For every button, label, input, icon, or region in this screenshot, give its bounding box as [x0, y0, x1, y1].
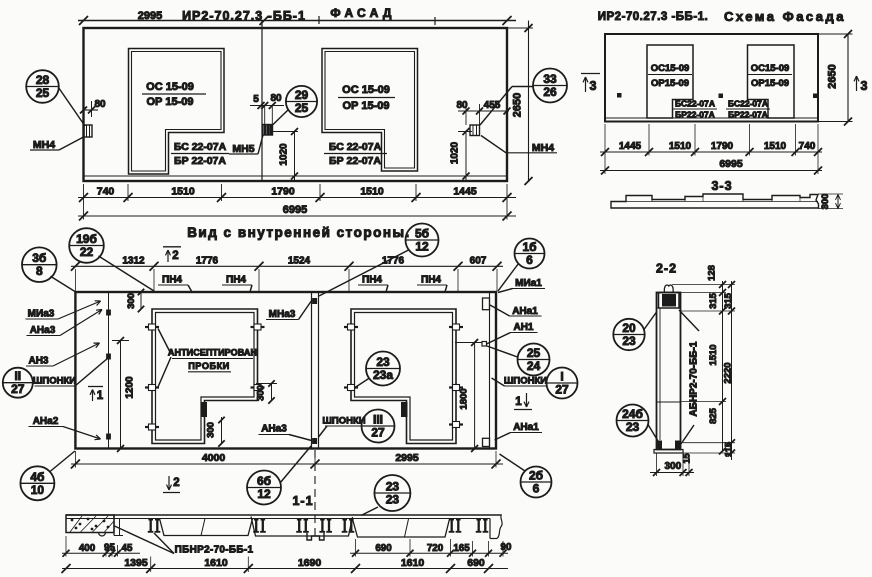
svg-text:33: 33 — [543, 72, 557, 86]
svg-text:ИР2-70.27.3 -ББ-1.: ИР2-70.27.3 -ББ-1. — [598, 11, 709, 23]
svg-text:1610: 1610 — [204, 557, 228, 569]
svg-text:МИа3: МИа3 — [28, 309, 55, 320]
svg-text:БР22-07А: БР22-07А — [675, 110, 715, 120]
svg-text:5: 5 — [253, 94, 259, 105]
svg-text:23: 23 — [376, 355, 390, 369]
svg-text:27: 27 — [371, 426, 385, 440]
svg-text:6995: 6995 — [719, 158, 743, 170]
svg-text:740: 740 — [799, 141, 816, 152]
svg-text:300: 300 — [206, 422, 217, 438]
svg-text:2995: 2995 — [395, 452, 419, 464]
svg-text:ОС 15-09: ОС 15-09 — [342, 84, 390, 96]
svg-text:6б: 6б — [257, 474, 271, 488]
svg-text:27: 27 — [11, 382, 25, 396]
svg-text:80: 80 — [94, 99, 106, 110]
svg-text:300: 300 — [820, 194, 831, 210]
svg-text:128: 128 — [707, 265, 718, 281]
svg-text:1445: 1445 — [619, 141, 642, 152]
svg-text:2б: 2б — [529, 469, 543, 483]
svg-text:690: 690 — [467, 557, 485, 569]
svg-text:6: 6 — [526, 253, 533, 267]
svg-text:III: III — [373, 413, 383, 427]
svg-text:80: 80 — [270, 93, 282, 104]
svg-text:2: 2 — [173, 477, 179, 489]
svg-text:АН1: АН1 — [513, 322, 533, 333]
svg-text:1510: 1510 — [669, 141, 692, 152]
svg-text:400: 400 — [79, 543, 96, 554]
svg-text:607: 607 — [470, 256, 487, 267]
svg-text:МН5: МН5 — [232, 143, 254, 155]
svg-text:23: 23 — [386, 480, 400, 494]
svg-text:ПН4: ПН4 — [421, 275, 441, 286]
svg-text:1-1: 1-1 — [292, 494, 313, 508]
svg-text:19б: 19б — [76, 232, 97, 246]
svg-text:АНа1: АНа1 — [512, 306, 538, 317]
svg-text:20: 20 — [622, 321, 636, 335]
svg-text:1020: 1020 — [450, 141, 461, 164]
svg-text:ШПОНКИ: ШПОНКИ — [504, 376, 547, 387]
svg-text:1б: 1б — [522, 240, 536, 254]
svg-text:300: 300 — [664, 461, 681, 472]
svg-text:165: 165 — [453, 543, 470, 554]
svg-text:1200: 1200 — [125, 376, 136, 399]
svg-text:28: 28 — [36, 73, 50, 87]
svg-text:90: 90 — [501, 542, 512, 553]
svg-text:1510: 1510 — [708, 344, 719, 365]
svg-text:1610: 1610 — [401, 557, 425, 569]
svg-text:1510: 1510 — [764, 141, 787, 152]
svg-text:1510: 1510 — [360, 186, 384, 198]
svg-text:ОС15-09: ОС15-09 — [751, 63, 790, 74]
svg-text:ПН4: ПН4 — [226, 275, 246, 286]
svg-text:6995: 6995 — [283, 204, 307, 216]
svg-text:115: 115 — [724, 441, 735, 457]
svg-text:ПН4: ПН4 — [362, 275, 382, 286]
svg-text:12: 12 — [415, 240, 429, 254]
svg-text:8: 8 — [36, 264, 43, 278]
svg-text:II: II — [14, 369, 21, 383]
svg-text:ОР 15-09: ОР 15-09 — [146, 96, 193, 108]
svg-text:25: 25 — [527, 346, 541, 360]
svg-text:24б: 24б — [622, 407, 643, 421]
svg-text:ОС15-09: ОС15-09 — [651, 63, 690, 74]
svg-text:БР 22-07А: БР 22-07А — [329, 155, 381, 167]
svg-text:2650: 2650 — [827, 64, 839, 88]
svg-text:23: 23 — [386, 493, 400, 507]
svg-text:БС22-07А: БС22-07А — [675, 99, 715, 109]
svg-text:3-3: 3-3 — [711, 179, 732, 193]
svg-text:23а: 23а — [373, 368, 393, 382]
svg-text:3: 3 — [861, 79, 868, 93]
svg-text:720: 720 — [427, 543, 444, 554]
svg-text:315: 315 — [723, 292, 734, 309]
svg-text:1: 1 — [515, 396, 522, 408]
svg-text:2220: 2220 — [723, 362, 734, 383]
svg-text:1510: 1510 — [171, 186, 195, 198]
svg-text:26: 26 — [543, 85, 557, 99]
svg-text:1800: 1800 — [459, 388, 470, 409]
svg-text:29: 29 — [295, 88, 309, 102]
svg-text:АНа2: АНа2 — [33, 416, 59, 427]
svg-text:1790: 1790 — [711, 141, 734, 152]
svg-text:1020: 1020 — [279, 143, 290, 166]
svg-text:1312: 1312 — [122, 256, 145, 267]
svg-text:БР22-07А: БР22-07А — [728, 110, 768, 120]
svg-text:ПБНР2-70-ББ-1: ПБНР2-70-ББ-1 — [175, 545, 254, 556]
svg-text:1524: 1524 — [288, 256, 311, 267]
svg-text:1395: 1395 — [124, 557, 148, 569]
svg-text:27: 27 — [555, 383, 569, 397]
svg-text:23: 23 — [626, 420, 640, 434]
svg-text:1790: 1790 — [271, 186, 295, 198]
svg-text:МН4: МН4 — [33, 139, 55, 151]
svg-text:4000: 4000 — [202, 452, 226, 464]
svg-text:23: 23 — [622, 334, 636, 348]
svg-text:АН3: АН3 — [28, 356, 48, 367]
svg-text:300: 300 — [256, 385, 267, 401]
svg-text:315: 315 — [708, 292, 719, 309]
svg-text:АНа3: АНа3 — [30, 325, 56, 336]
svg-text:ФАСАД: ФАСАД — [330, 6, 395, 20]
svg-text:2-2: 2-2 — [656, 262, 677, 276]
svg-text:25: 25 — [36, 86, 50, 100]
svg-text:ОР15-09: ОР15-09 — [651, 78, 689, 89]
svg-text:АБНР2-70-ББ-1: АБНР2-70-ББ-1 — [689, 341, 700, 416]
svg-text:БС22-07А: БС22-07А — [728, 99, 768, 109]
svg-text:АНТИСЕПТИРОВАН: АНТИСЕПТИРОВАН — [168, 348, 257, 358]
svg-text:45: 45 — [122, 543, 133, 554]
svg-text:Вид с внутренней стороны.: Вид с внутренней стороны. — [187, 225, 411, 240]
svg-text:ОС 15-09: ОС 15-09 — [146, 81, 194, 93]
svg-text:740: 740 — [97, 186, 115, 198]
svg-text:ИР2-70.27.3 -ББ-1: ИР2-70.27.3 -ББ-1 — [182, 9, 306, 23]
svg-text:1: 1 — [97, 390, 104, 402]
svg-text:БС 22-07А: БС 22-07А — [174, 141, 227, 153]
svg-text:ПРОБКИ: ПРОБКИ — [188, 361, 230, 371]
svg-text:БР 22-07А: БР 22-07А — [174, 155, 226, 167]
svg-text:12: 12 — [257, 487, 271, 501]
svg-text:3б: 3б — [32, 251, 46, 265]
svg-text:ПН4: ПН4 — [162, 275, 182, 286]
svg-text:6: 6 — [533, 482, 540, 496]
svg-text:24: 24 — [527, 359, 541, 373]
svg-text:МНа3: МНа3 — [269, 309, 296, 320]
svg-text:Схема Фасада: Схема Фасада — [724, 9, 846, 24]
svg-text:ШПОНКИ: ШПОНКИ — [33, 376, 76, 387]
svg-text:I: I — [560, 370, 563, 384]
svg-text:ОР15-09: ОР15-09 — [751, 78, 789, 89]
svg-text:1445: 1445 — [453, 186, 477, 198]
svg-text:2650: 2650 — [512, 93, 524, 117]
svg-text:ШПОНКИ: ШПОНКИ — [322, 416, 365, 427]
svg-text:2995: 2995 — [138, 10, 162, 22]
svg-text:825: 825 — [708, 407, 719, 424]
svg-text:690: 690 — [375, 543, 392, 554]
svg-text:22: 22 — [80, 245, 94, 259]
svg-text:АНа3: АНа3 — [261, 424, 287, 435]
svg-text:БС 22-07А: БС 22-07А — [329, 141, 382, 153]
svg-text:10: 10 — [31, 483, 45, 497]
svg-text:АНа1: АНа1 — [513, 422, 539, 433]
svg-text:ОР 15-09: ОР 15-09 — [342, 100, 389, 112]
svg-text:5б: 5б — [415, 227, 429, 241]
svg-text:1776: 1776 — [196, 256, 219, 267]
svg-text:25: 25 — [295, 101, 309, 115]
svg-text:1690: 1690 — [298, 557, 322, 569]
svg-text:300: 300 — [126, 293, 137, 309]
svg-text:4б: 4б — [30, 470, 44, 484]
svg-text:МИа1: МИа1 — [515, 278, 542, 289]
svg-text:2: 2 — [172, 250, 178, 262]
svg-text:3: 3 — [590, 79, 597, 93]
